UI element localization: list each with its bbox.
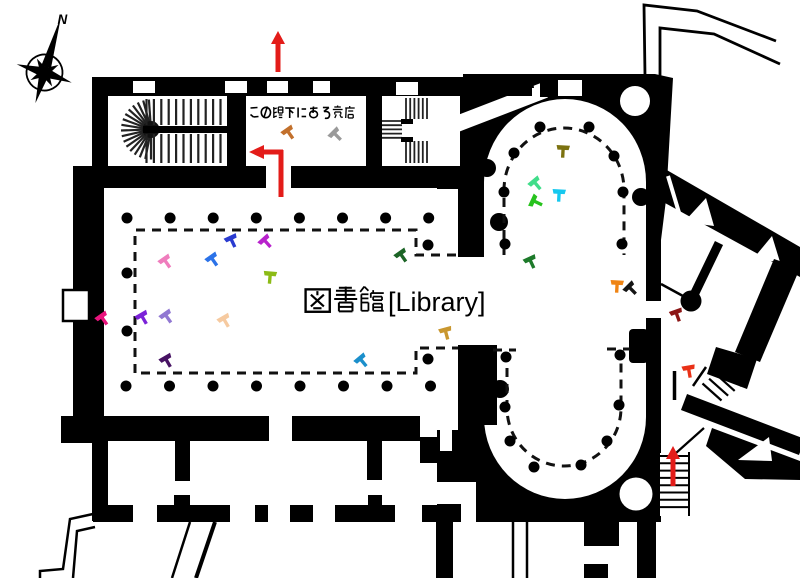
svg-text:N: N [58, 12, 68, 27]
svg-text:[Library]: [Library] [388, 287, 486, 317]
